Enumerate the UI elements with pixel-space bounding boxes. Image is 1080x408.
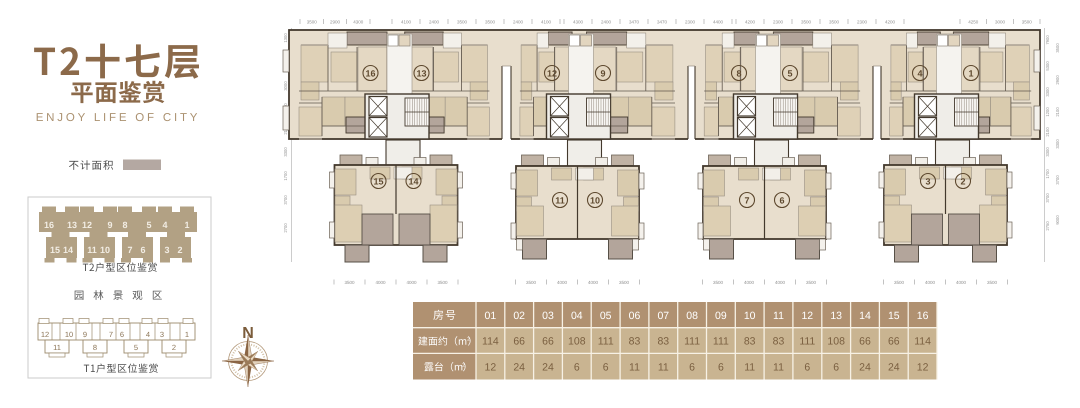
- svg-text:83: 83: [744, 336, 756, 348]
- svg-text:3500: 3500: [307, 20, 318, 25]
- svg-text:2400: 2400: [601, 20, 612, 25]
- svg-text:3500: 3500: [894, 280, 905, 285]
- svg-text:6: 6: [718, 361, 724, 373]
- svg-text:4100: 4100: [401, 20, 412, 25]
- svg-text:10: 10: [590, 195, 600, 205]
- svg-text:04: 04: [571, 310, 583, 322]
- svg-text:24: 24: [888, 361, 900, 373]
- svg-text:5: 5: [787, 68, 792, 78]
- svg-text:3500: 3500: [526, 280, 537, 285]
- svg-text:9000: 9000: [1055, 215, 1060, 225]
- svg-text:6: 6: [779, 195, 784, 205]
- svg-text:09: 09: [715, 310, 727, 322]
- svg-text:24: 24: [513, 361, 525, 373]
- svg-text:11: 11: [629, 361, 640, 373]
- svg-text:05: 05: [600, 310, 612, 322]
- svg-text:12: 12: [917, 361, 929, 373]
- svg-text:24: 24: [542, 361, 554, 373]
- svg-text:3500: 3500: [987, 280, 998, 285]
- svg-text:108: 108: [827, 336, 845, 348]
- svg-text:02: 02: [513, 310, 525, 322]
- svg-text:8: 8: [736, 68, 741, 78]
- svg-text:16: 16: [44, 220, 54, 230]
- svg-text:3500: 3500: [713, 280, 724, 285]
- svg-text:2900: 2900: [1055, 75, 1060, 85]
- svg-text:1700: 1700: [283, 171, 288, 181]
- svg-text:16: 16: [365, 68, 375, 78]
- svg-text:2750: 2750: [1045, 221, 1050, 231]
- svg-text:4000: 4000: [588, 280, 599, 285]
- svg-text:111: 111: [799, 336, 815, 348]
- svg-text:12: 12: [547, 68, 557, 78]
- svg-text:2300: 2300: [773, 20, 784, 25]
- svg-text:2100: 2100: [1055, 107, 1060, 117]
- svg-text:3700: 3700: [283, 195, 288, 205]
- svg-text:6: 6: [140, 245, 145, 255]
- svg-text:10: 10: [65, 330, 73, 339]
- svg-text:4400: 4400: [713, 20, 724, 25]
- svg-text:16: 16: [917, 310, 929, 322]
- svg-text:4000: 4000: [557, 280, 568, 285]
- svg-text:3000: 3000: [995, 20, 1006, 25]
- svg-text:3500: 3500: [1055, 43, 1060, 53]
- svg-text:83: 83: [773, 336, 785, 348]
- svg-text:3500: 3500: [1022, 20, 1033, 25]
- svg-text:3500: 3500: [437, 280, 448, 285]
- svg-text:9: 9: [107, 220, 112, 230]
- svg-text:14: 14: [859, 310, 871, 322]
- svg-text:66: 66: [859, 336, 871, 348]
- svg-text:5: 5: [146, 220, 151, 230]
- svg-text:3300: 3300: [1045, 87, 1050, 97]
- svg-text:114: 114: [914, 336, 931, 348]
- svg-text:14: 14: [63, 245, 73, 255]
- svg-text:2300: 2300: [857, 20, 868, 25]
- svg-text:9: 9: [83, 330, 87, 339]
- svg-text:1: 1: [185, 330, 189, 339]
- svg-text:06: 06: [629, 310, 641, 322]
- svg-text:3500: 3500: [829, 20, 840, 25]
- svg-text:2700: 2700: [283, 223, 288, 233]
- svg-text:7900: 7900: [1045, 35, 1050, 45]
- svg-text:11: 11: [87, 245, 97, 255]
- svg-text:2300: 2300: [685, 20, 696, 25]
- svg-text:4200: 4200: [745, 20, 756, 25]
- svg-text:11: 11: [53, 343, 61, 352]
- svg-text:15: 15: [373, 176, 383, 186]
- svg-text:4000: 4000: [925, 280, 936, 285]
- svg-text:13: 13: [416, 68, 426, 78]
- svg-text:6: 6: [689, 361, 695, 373]
- svg-text:3500: 3500: [806, 280, 817, 285]
- svg-text:1: 1: [184, 220, 189, 230]
- svg-text:1700: 1700: [1045, 169, 1050, 179]
- svg-text:12: 12: [41, 330, 49, 339]
- svg-text:66: 66: [888, 336, 900, 348]
- svg-text:4: 4: [162, 220, 167, 230]
- svg-text:5300: 5300: [1045, 61, 1050, 71]
- svg-text:5: 5: [134, 343, 138, 352]
- svg-text:4100: 4100: [541, 20, 552, 25]
- svg-text:13: 13: [830, 310, 842, 322]
- svg-text:2: 2: [462, 362, 465, 368]
- svg-text:2: 2: [172, 343, 176, 352]
- svg-text:11: 11: [773, 361, 784, 373]
- svg-text:3700: 3700: [1045, 193, 1050, 203]
- svg-text:01: 01: [485, 310, 497, 322]
- svg-text:4300: 4300: [573, 20, 584, 25]
- svg-text:6: 6: [120, 330, 124, 339]
- svg-text:8: 8: [93, 343, 97, 352]
- svg-text:3300: 3300: [1055, 139, 1060, 149]
- svg-text:4: 4: [146, 330, 150, 339]
- svg-text:2: 2: [177, 245, 182, 255]
- svg-text:2100: 2100: [1045, 127, 1050, 137]
- svg-text:3: 3: [160, 330, 164, 339]
- svg-text:24: 24: [859, 361, 871, 373]
- svg-text:10: 10: [744, 310, 756, 322]
- svg-text:9: 9: [600, 68, 605, 78]
- svg-text:6: 6: [574, 361, 580, 373]
- svg-text:11: 11: [773, 310, 784, 322]
- svg-text:3470: 3470: [629, 20, 640, 25]
- svg-text:2: 2: [467, 337, 470, 343]
- svg-text:7: 7: [109, 330, 113, 339]
- svg-text:4000: 4000: [744, 280, 755, 285]
- svg-text:3470: 3470: [657, 20, 668, 25]
- svg-text:83: 83: [657, 336, 669, 348]
- svg-text:3: 3: [925, 176, 930, 186]
- svg-text:7: 7: [127, 245, 132, 255]
- svg-text:8: 8: [122, 220, 127, 230]
- svg-text:4250: 4250: [968, 20, 979, 25]
- svg-text:08: 08: [686, 310, 698, 322]
- svg-text:12: 12: [82, 220, 92, 230]
- svg-text:3300: 3300: [283, 147, 288, 157]
- svg-text:4300: 4300: [353, 20, 364, 25]
- svg-text:4: 4: [917, 68, 922, 78]
- svg-text:4000: 4000: [406, 280, 417, 285]
- svg-text:4000: 4000: [375, 280, 386, 285]
- svg-text:1300: 1300: [283, 33, 288, 43]
- svg-text:3700: 3700: [1055, 175, 1060, 185]
- svg-text:111: 111: [713, 336, 729, 348]
- svg-text:6: 6: [603, 361, 609, 373]
- svg-text:111: 111: [598, 336, 614, 348]
- svg-text:1200: 1200: [1045, 107, 1050, 117]
- svg-text:11: 11: [744, 361, 755, 373]
- svg-text:2: 2: [960, 176, 965, 186]
- svg-text:07: 07: [657, 310, 669, 322]
- svg-text:3500: 3500: [344, 280, 355, 285]
- svg-text:1: 1: [968, 68, 973, 78]
- svg-text:11: 11: [555, 195, 565, 205]
- svg-text:15: 15: [50, 245, 60, 255]
- svg-text:66: 66: [513, 336, 525, 348]
- svg-text:4000: 4000: [775, 280, 786, 285]
- svg-text:2400: 2400: [429, 20, 440, 25]
- svg-text:3300: 3300: [1045, 147, 1050, 157]
- svg-text:111: 111: [684, 336, 700, 348]
- svg-text:15: 15: [888, 310, 900, 322]
- svg-text:03: 03: [542, 310, 554, 322]
- svg-text:114: 114: [482, 336, 499, 348]
- svg-text:3: 3: [164, 245, 169, 255]
- svg-text:2900: 2900: [330, 20, 341, 25]
- svg-text:13: 13: [67, 220, 77, 230]
- svg-text:66: 66: [542, 336, 554, 348]
- svg-text:3500: 3500: [485, 20, 496, 25]
- svg-text:7: 7: [744, 195, 749, 205]
- svg-text:4000: 4000: [956, 280, 967, 285]
- svg-text:6: 6: [804, 361, 810, 373]
- svg-text:4200: 4200: [885, 20, 896, 25]
- svg-text:14: 14: [408, 176, 418, 186]
- svg-text:3000: 3000: [283, 81, 288, 91]
- svg-text:ENJOY LIFE OF CITY: ENJOY LIFE OF CITY: [36, 112, 201, 124]
- svg-text:6: 6: [833, 361, 839, 373]
- svg-text:11: 11: [658, 361, 669, 373]
- svg-text:3500: 3500: [619, 280, 630, 285]
- svg-text:12: 12: [801, 310, 813, 322]
- svg-text:108: 108: [568, 336, 586, 348]
- svg-text:3500: 3500: [801, 20, 812, 25]
- svg-text:3500: 3500: [457, 20, 468, 25]
- svg-text:83: 83: [629, 336, 641, 348]
- svg-text:10: 10: [100, 245, 110, 255]
- svg-text:12: 12: [485, 361, 497, 373]
- svg-text:2400: 2400: [513, 20, 524, 25]
